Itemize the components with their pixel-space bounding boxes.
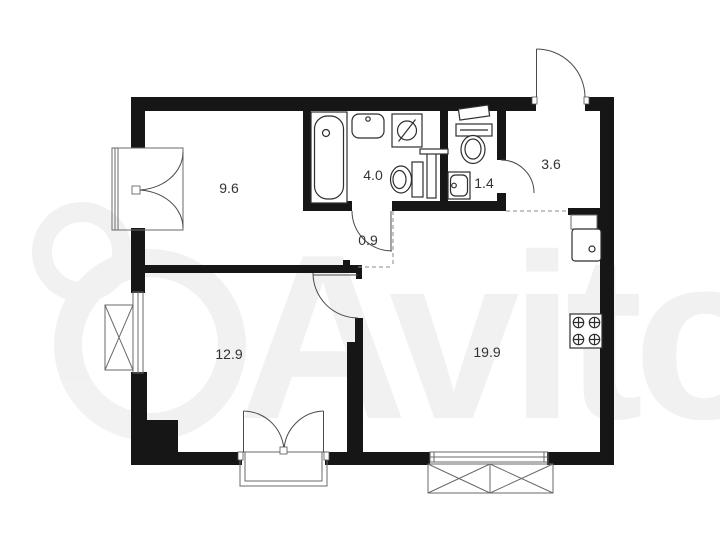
room-label-corridor: 0.9 (358, 232, 378, 248)
wall-left-upper (131, 97, 145, 148)
room-label-bathroom: 4.0 (363, 167, 383, 183)
stove-icon (570, 314, 602, 348)
wall-bottom-middle (325, 452, 430, 465)
wall-bedroom-living-lower (347, 342, 363, 452)
double-door-handle (280, 447, 287, 454)
balcony-box-bottom (428, 464, 553, 493)
wall-bottom-left (131, 452, 242, 465)
entrance-jamb-left (532, 97, 537, 104)
window-bedroom-bottom (133, 292, 143, 373)
balcony-box-left (105, 305, 133, 370)
bathtub-icon (311, 112, 347, 203)
double-door-jamb-right (324, 452, 329, 460)
wall-kitchen-jog-v (597, 215, 603, 230)
room-label-wc: 1.4 (474, 175, 494, 191)
wall-right (600, 97, 614, 465)
washing-machine-icon (392, 114, 422, 147)
door-jamb-tick-bottom (356, 273, 362, 279)
entrance-jamb-right (584, 97, 589, 104)
wc-door (501, 160, 534, 193)
double-door-jamb-left (238, 452, 243, 460)
room-label-hallway: 3.6 (541, 156, 561, 172)
room-label-bedroom-bottom: 12.9 (215, 346, 242, 362)
entrance-door (532, 49, 589, 104)
wall-wc-hallway (497, 111, 506, 160)
wall-kitchen-jog-h (568, 208, 603, 215)
wall-bedroom-bathroom (303, 111, 311, 211)
bathroom-fixtures (311, 112, 448, 203)
wall-left-lower (131, 372, 147, 420)
floor-plan: Avito (0, 0, 720, 540)
bathroom-sink-icon (352, 114, 384, 138)
wall-bedrooms-divider (145, 265, 362, 273)
door-jamb-tick-top (343, 260, 350, 265)
wall-bathroom-bottom-right (392, 201, 506, 211)
wall-bottom-right (547, 452, 614, 465)
room-label-kitchen-living: 19.9 (473, 344, 500, 360)
watermark-text: Avito (238, 205, 720, 468)
window-handle (132, 186, 140, 194)
floor-plan-drawing: Avito (0, 0, 720, 540)
wall-bedroom-living-upper (355, 318, 363, 342)
wall-wc-hallway-stub (497, 193, 506, 211)
kitchen-sink-icon (572, 229, 601, 261)
room-label-bedroom-top: 9.6 (219, 180, 239, 196)
wc-sink-icon (448, 172, 470, 199)
toilet-icon (391, 149, 449, 198)
wc-toilet-icon (456, 124, 492, 164)
casement-window-bedroom-top (112, 148, 183, 230)
wall-left-middle (131, 228, 145, 293)
wall-bathroom-wc (440, 111, 448, 201)
